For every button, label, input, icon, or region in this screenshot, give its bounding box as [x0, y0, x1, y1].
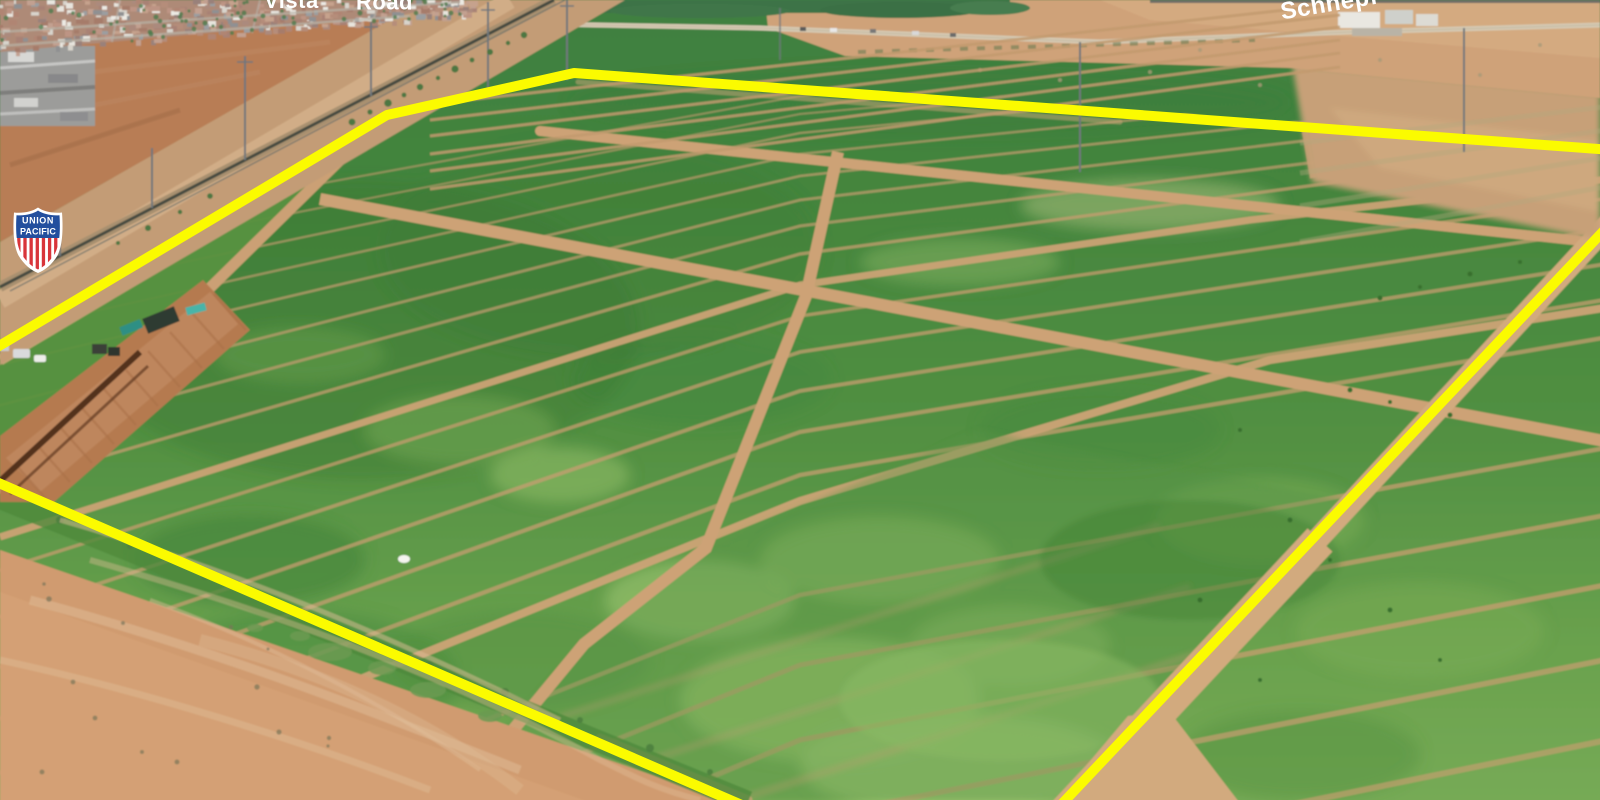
svg-text:UNION: UNION: [22, 216, 54, 226]
svg-text:Road: Road: [356, 0, 413, 15]
svg-text:Vista: Vista: [264, 0, 319, 13]
svg-text:PACIFIC: PACIFIC: [20, 227, 56, 237]
